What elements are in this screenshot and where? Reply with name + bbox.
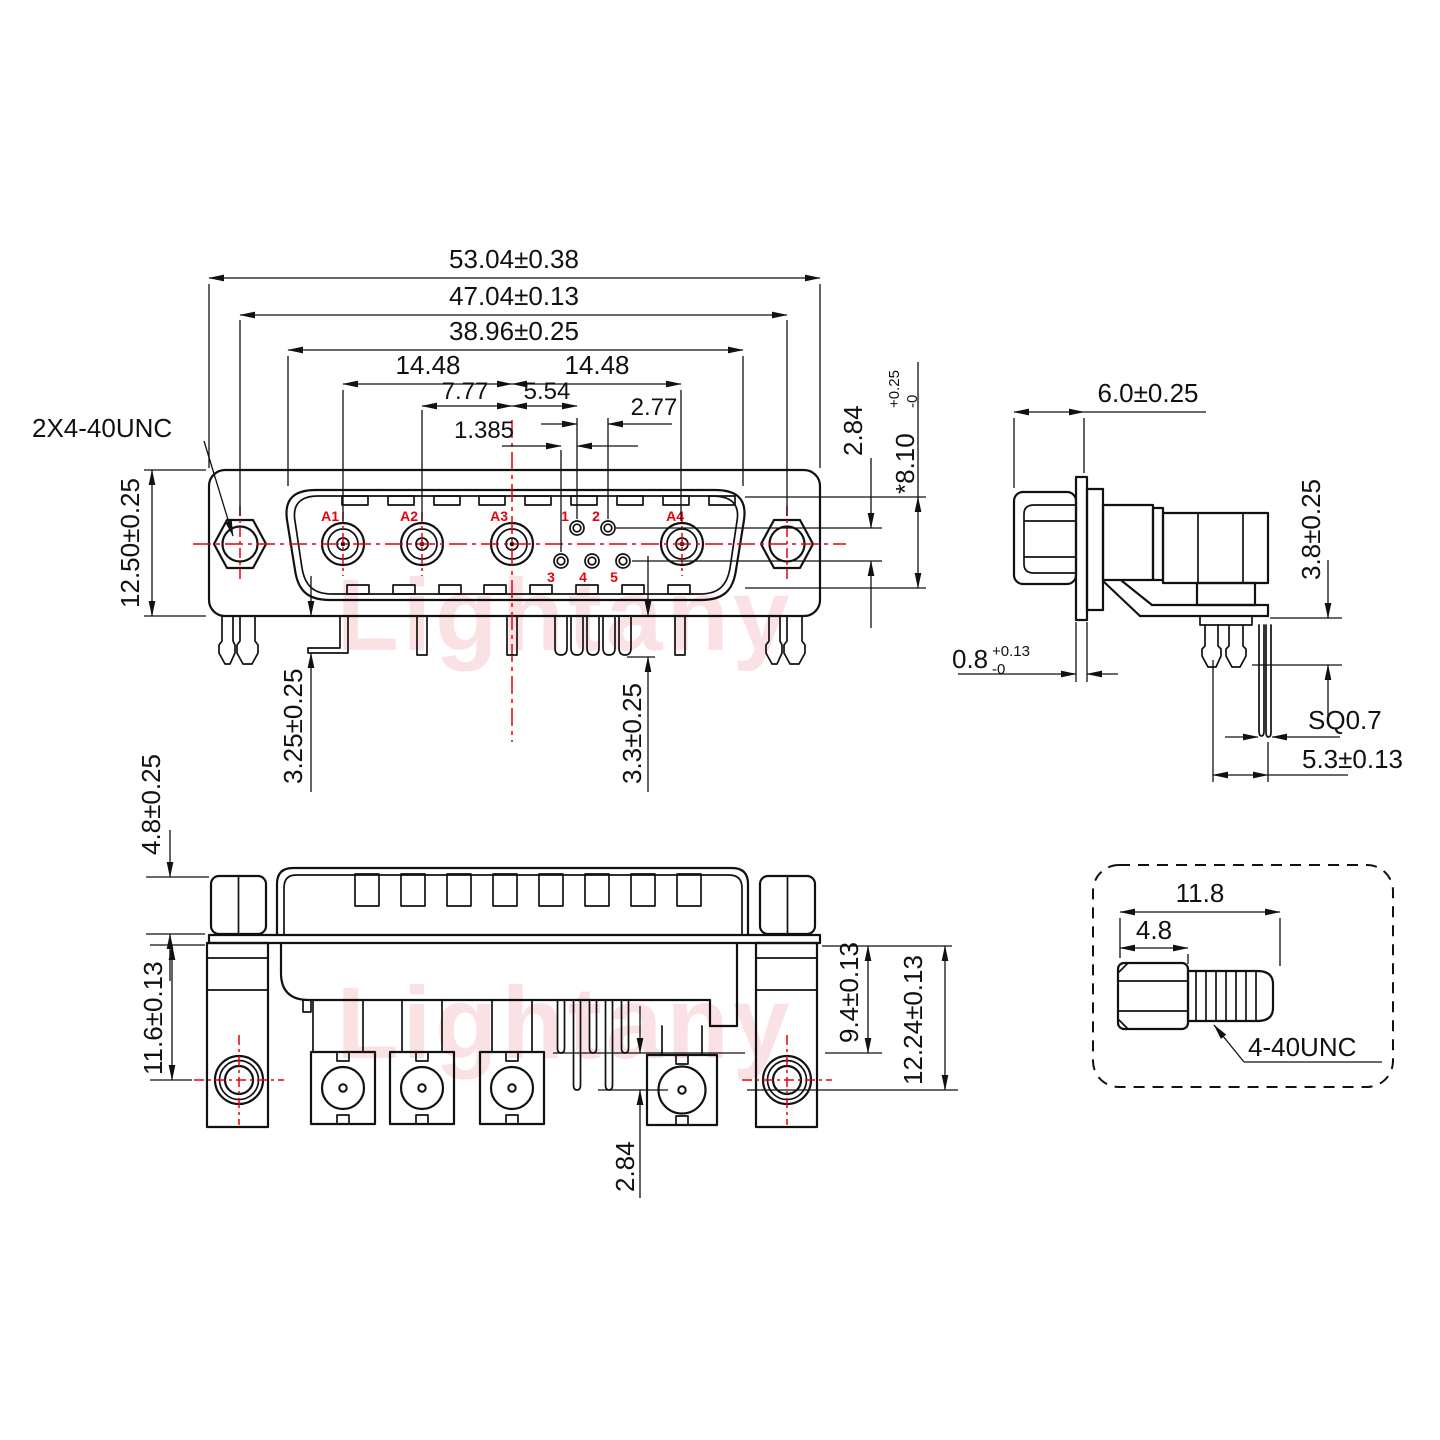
pin-label-2: 2 [592, 508, 600, 524]
drawing-page: Lightany Lightany [0, 0, 1440, 1440]
front-view: A1 A2 A3 A4 1 2 3 4 5 [32, 244, 926, 792]
contact-label-a1: A1 [321, 508, 339, 524]
dim-screw-head: 4.8 [1136, 915, 1172, 945]
dim-pin-row-gap: 2.84 [838, 405, 868, 456]
dim-mount-hole: 11.6±0.13 [138, 961, 168, 1075]
dim-bottom-row-gap: 2.84 [610, 1141, 640, 1192]
dim-pin-pitch: 2.77 [631, 394, 678, 421]
dim-pitch-left: 14.48 [395, 350, 460, 380]
dim-body-height: 12.50±0.25 [115, 478, 145, 608]
dim-shell-tol-minus: -0 [904, 395, 921, 408]
dim-pin-offset: 5.3±0.13 [1302, 744, 1403, 774]
pin-label-5: 5 [610, 569, 618, 585]
dim-nut-height: 4.8±0.25 [136, 754, 166, 855]
contact-label-a2: A2 [400, 508, 418, 524]
dim-pin-square: SQ0.7 [1308, 705, 1382, 735]
pin-label-4: 4 [579, 569, 587, 585]
connector-technical-drawing: Lightany Lightany [0, 0, 1440, 1440]
side-dimension-lines [958, 412, 1348, 775]
dim-flange-thickness-tol-minus: -0 [992, 661, 1005, 678]
pin-label-1: 1 [561, 508, 569, 524]
screw-detail: 11.8 4.8 4-40UNC [1093, 865, 1393, 1087]
side-extension-lines [1014, 418, 1342, 782]
dim-flange-thickness: 0.8 [952, 644, 988, 674]
dim-tail-right: 3.3±0.25 [617, 683, 647, 784]
dim-a2-to-center: 7.77 [442, 378, 489, 405]
contact-label-a3: A3 [490, 508, 508, 524]
dim-row-stagger: 1.385 [454, 417, 514, 444]
dim-screw-span: 47.04±0.13 [449, 281, 579, 311]
dim-pitch-right: 14.48 [564, 350, 629, 380]
pin-label-3: 3 [547, 569, 555, 585]
dim-overall-width: 53.04±0.38 [449, 244, 579, 274]
side-dimension-texts: 6.0±0.25 3.8±0.25 0.8 +0.13 -0 SQ0.7 5.3… [952, 378, 1403, 774]
side-view: 6.0±0.25 3.8±0.25 0.8 +0.13 -0 SQ0.7 5.3… [952, 378, 1403, 782]
dim-tail-left: 3.25±0.25 [278, 669, 308, 784]
dim-center-to-pin: 5.54 [524, 378, 571, 405]
dim-flange-width: 38.96±0.25 [449, 316, 579, 346]
dim-shell-tol-plus: +0.25 [886, 370, 903, 408]
dim-shell-height: *8.10 [890, 433, 920, 494]
screw-thread-note: 2X4-40UNC [32, 413, 172, 443]
dim-flange-thickness-tol-plus: +0.13 [992, 643, 1030, 660]
dim-shell-depth: 6.0±0.25 [1097, 378, 1198, 408]
screw-outline [1118, 963, 1273, 1029]
dim-pin-depth: 9.4±0.13 [834, 942, 864, 1043]
screw-thread-label: 4-40UNC [1248, 1032, 1356, 1062]
dim-screw-overall: 11.8 [1176, 878, 1225, 908]
side-outline [1014, 477, 1271, 737]
dim-bracket-gap: 3.8±0.25 [1296, 479, 1326, 580]
dim-coax-depth: 12.24±0.13 [898, 955, 928, 1085]
